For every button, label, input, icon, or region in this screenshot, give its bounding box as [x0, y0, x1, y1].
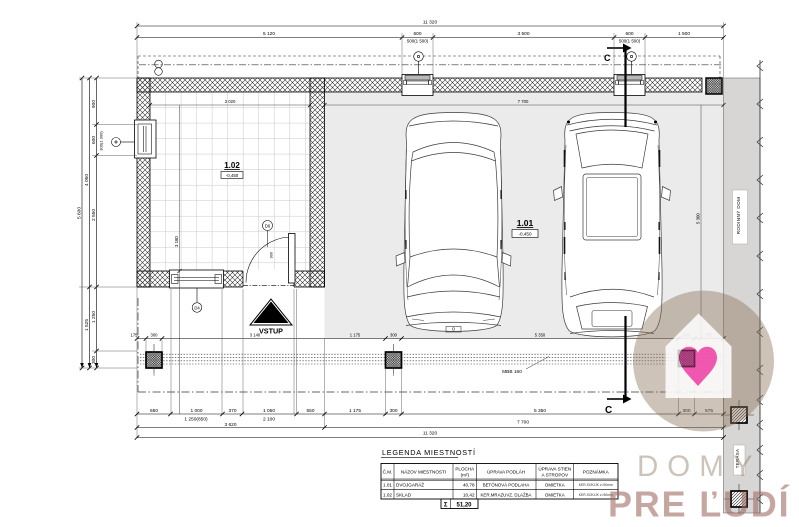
svg-text:RODINNÝ DOM: RODINNÝ DOM	[735, 197, 741, 235]
svg-text:A STROPOV: A STROPOV	[542, 473, 569, 478]
svg-text:KER.MRAZUVZ. DLAŽBA: KER.MRAZUVZ. DLAŽBA	[481, 493, 532, 498]
svg-text:300: 300	[151, 332, 159, 337]
svg-text:1 525: 1 525	[84, 319, 90, 331]
svg-text:3 500: 3 500	[517, 31, 529, 37]
svg-text:3 020: 3 020	[225, 99, 236, 104]
svg-text:1.01: 1.01	[517, 218, 534, 228]
svg-text:2 550: 2 550	[91, 209, 97, 221]
svg-text:D4: D4	[194, 305, 200, 310]
svg-text:-0,450: -0,450	[226, 173, 239, 178]
svg-text:1 250(850): 1 250(850)	[184, 417, 208, 423]
svg-text:1 500: 1 500	[678, 31, 690, 37]
svg-text:C: C	[604, 53, 611, 63]
svg-text:1 050: 1 050	[263, 408, 275, 414]
svg-text:BETÓNOVÁ PODLAHA: BETÓNOVÁ PODLAHA	[483, 483, 530, 488]
svg-text:7 700: 7 700	[517, 420, 529, 426]
svg-text:PLOCHA: PLOCHA	[455, 467, 475, 472]
svg-text:(m²): (m²)	[461, 473, 470, 478]
svg-text:5 350: 5 350	[534, 408, 546, 414]
svg-text:3 140: 3 140	[250, 332, 261, 337]
svg-text:300(1 300): 300(1 300)	[99, 131, 104, 151]
svg-text:11 320: 11 320	[423, 20, 438, 26]
svg-text:1.01: 1.01	[383, 483, 392, 488]
svg-text:1 175: 1 175	[349, 408, 361, 414]
svg-text:NÁZOV MIESTNOSTI: NÁZOV MIESTNOSTI	[401, 469, 446, 475]
svg-text:900: 900	[270, 252, 274, 258]
svg-text:900: 900	[91, 100, 97, 108]
svg-text:5 120: 5 120	[263, 31, 275, 37]
svg-text:3 620: 3 620	[224, 422, 236, 428]
svg-text:SKLAD: SKLAD	[396, 493, 412, 498]
svg-text:Σ: Σ	[444, 502, 448, 508]
svg-text:1 175: 1 175	[350, 332, 361, 337]
svg-text:VSTUP: VSTUP	[259, 327, 283, 336]
svg-text:LEGENDA MIESTNOSTÍ: LEGENDA MIESTNOSTÍ	[382, 448, 476, 457]
svg-text:DOMY: DOMY	[637, 450, 762, 483]
svg-text:550: 550	[306, 408, 314, 414]
svg-text:2 100: 2 100	[263, 417, 275, 423]
svg-text:370: 370	[228, 408, 236, 414]
svg-text:5 350: 5 350	[535, 332, 546, 337]
svg-text:-0,450: -0,450	[518, 232, 531, 237]
svg-text:1 250: 1 250	[91, 311, 97, 323]
svg-text:3 180: 3 180	[174, 236, 179, 247]
svg-text:600: 600	[625, 31, 633, 37]
svg-text:500(1 500): 500(1 500)	[619, 39, 641, 44]
svg-text:300: 300	[389, 408, 397, 414]
svg-text:300: 300	[91, 356, 97, 364]
svg-text:600: 600	[91, 136, 97, 144]
svg-text:40,78: 40,78	[463, 483, 475, 488]
svg-text:DVOJGARÁŽ: DVOJGARÁŽ	[396, 481, 424, 488]
svg-text:MBB 160: MBB 160	[502, 369, 522, 375]
svg-text:POZNÁMKA: POZNÁMKA	[583, 469, 610, 475]
svg-text:51,20: 51,20	[456, 502, 472, 508]
svg-text:C: C	[605, 405, 612, 416]
svg-text:Č.M.: Č.M.	[383, 469, 393, 475]
svg-text:600: 600	[413, 31, 421, 37]
svg-text:OMIETKA: OMIETKA	[545, 483, 565, 488]
svg-text:650: 650	[150, 408, 158, 414]
svg-text:1 000: 1 000	[190, 408, 202, 414]
svg-text:11 320: 11 320	[423, 431, 438, 437]
svg-text:D6: D6	[265, 223, 271, 228]
svg-text:5 300: 5 300	[696, 213, 701, 224]
svg-text:1.02: 1.02	[383, 493, 392, 498]
svg-text:PRE ĽUDÍ: PRE ĽUDÍ	[608, 484, 790, 523]
svg-text:4 050: 4 050	[84, 174, 90, 186]
svg-text:ÚPRAVA PODLÁH: ÚPRAVA PODLÁH	[487, 469, 525, 475]
svg-text:OMIETKA: OMIETKA	[545, 493, 565, 498]
svg-text:500(1 500): 500(1 500)	[407, 39, 429, 44]
svg-text:10,42: 10,42	[463, 493, 475, 498]
svg-text:1.02: 1.02	[224, 161, 240, 170]
svg-text:7 700: 7 700	[518, 99, 529, 104]
svg-text:300: 300	[390, 332, 398, 337]
svg-text:ÚPRAVA STIEN: ÚPRAVA STIEN	[538, 466, 571, 472]
svg-text:5 600: 5 600	[77, 207, 83, 219]
